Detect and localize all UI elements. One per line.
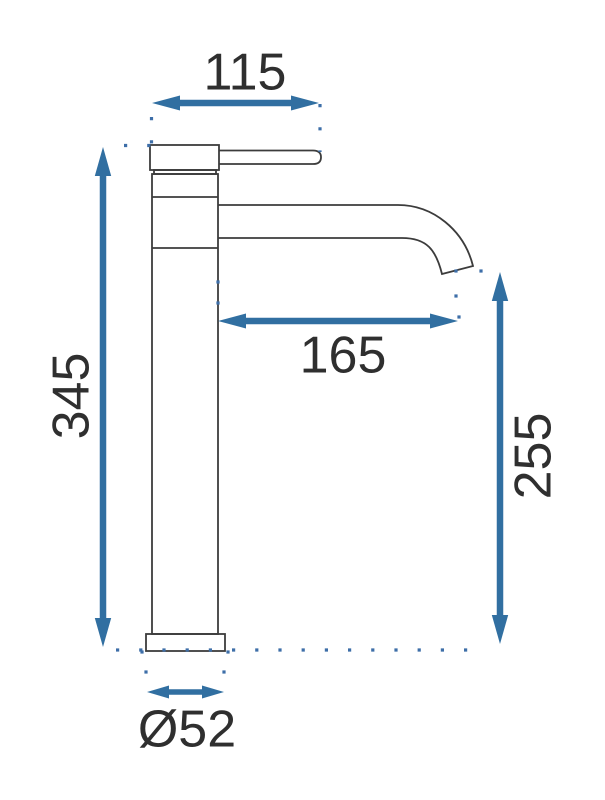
- extension-dot: [222, 670, 225, 673]
- faucet-lever: [219, 151, 321, 165]
- faucet-base-flange: [146, 634, 225, 651]
- arrowhead-left-icon: [147, 686, 169, 699]
- extension-marks: [116, 104, 484, 674]
- dimension-total-height: 345: [43, 147, 111, 647]
- extension-dot: [140, 650, 143, 653]
- dimension-label-total-height: 345: [43, 353, 101, 440]
- arrowhead-left-icon: [152, 96, 180, 111]
- arrowhead-right-icon: [202, 686, 224, 699]
- arrowhead-up-icon: [492, 272, 508, 301]
- arrowhead-left-icon: [218, 314, 246, 329]
- diagram-svg: 115 345 165 255 Ø52: [0, 0, 605, 800]
- faucet-body: [152, 174, 218, 634]
- arrowhead-down-icon: [95, 618, 111, 647]
- extension-dot: [144, 670, 147, 673]
- dimension-base-diameter: Ø52: [138, 686, 236, 759]
- extension-dot: [457, 315, 460, 318]
- dimension-label-handle-width: 115: [204, 44, 287, 102]
- extension-dot: [216, 301, 219, 304]
- extension-dot: [454, 294, 457, 297]
- faucet-cap: [150, 145, 219, 170]
- arrowhead-up-icon: [95, 147, 111, 176]
- dimension-label-base-diameter: Ø52: [138, 701, 236, 759]
- dimension-spout-height: 255: [492, 272, 563, 644]
- dimension-handle-width: 115: [152, 44, 319, 111]
- dimension-label-spout-height: 255: [505, 413, 563, 500]
- faucet-dimension-diagram: 115 345 165 255 Ø52: [0, 0, 605, 800]
- faucet-outline: [146, 145, 473, 651]
- extension-dot: [479, 269, 482, 272]
- arrowhead-right-icon: [291, 96, 319, 111]
- arrowhead-right-icon: [430, 314, 458, 329]
- extension-dot: [454, 269, 457, 272]
- dimension-spout-reach: 165: [218, 314, 458, 385]
- extension-dot: [216, 280, 219, 283]
- extension-dot: [226, 650, 229, 653]
- dimension-label-spout-reach: 165: [300, 327, 387, 385]
- faucet-spout: [218, 205, 473, 274]
- arrowhead-down-icon: [492, 615, 508, 644]
